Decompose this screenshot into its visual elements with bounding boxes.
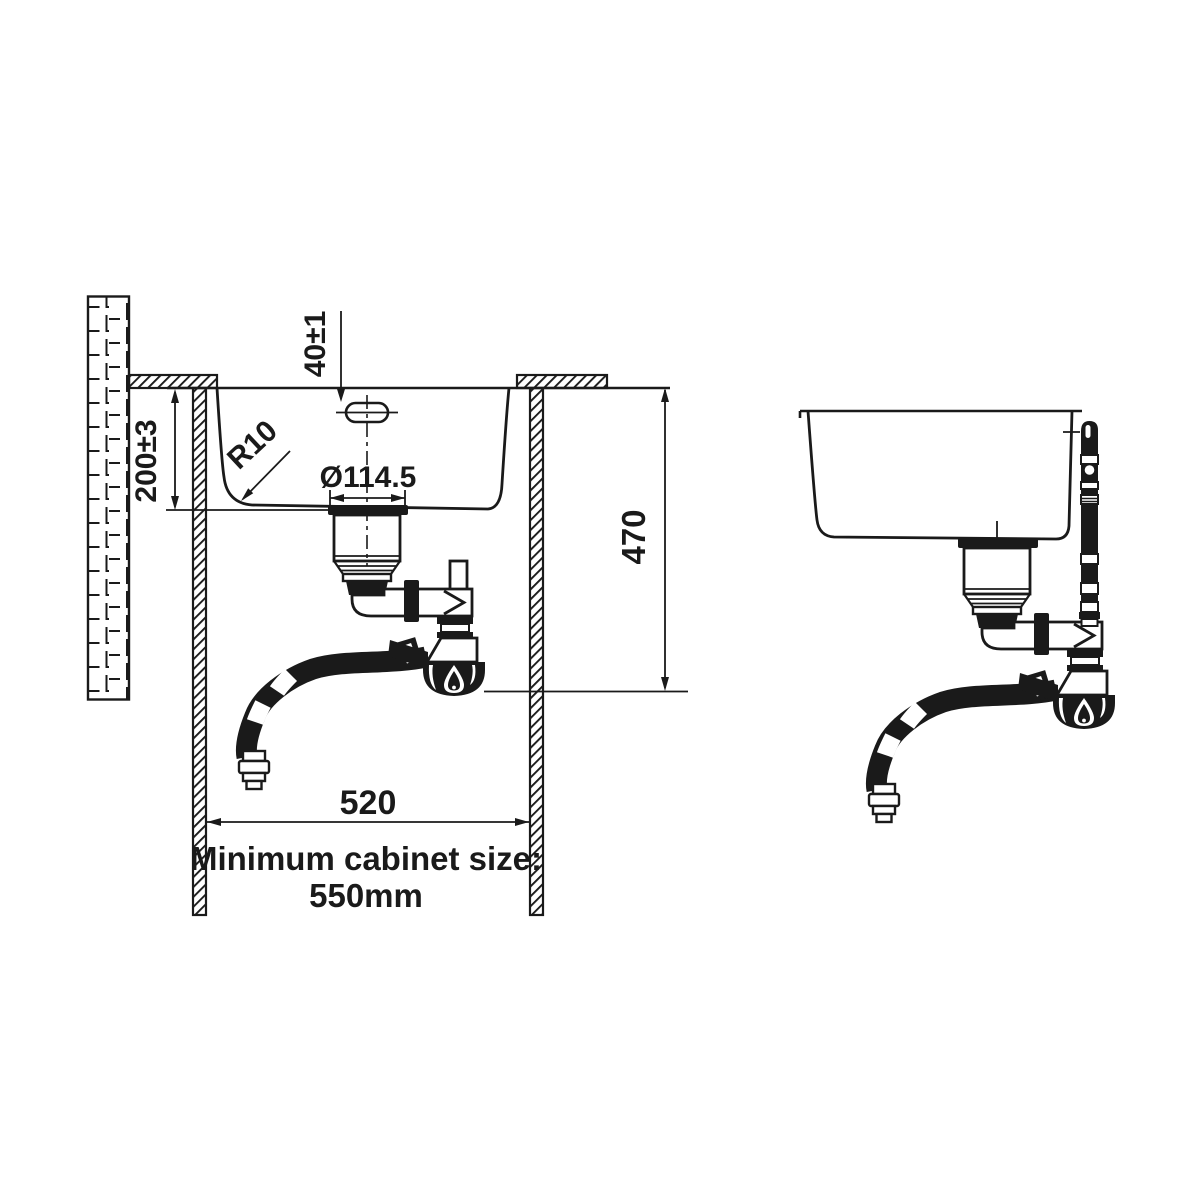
cabinet-note-line1: Minimum cabinet size:: [190, 840, 542, 877]
dim-height-label: 470: [615, 509, 652, 564]
dim-width-520: 520: [207, 784, 529, 826]
dim-overflow-label: 40±1: [299, 311, 332, 378]
sink-installation-diagram: 40±1 200±3 R10 Ø114.5 470: [0, 0, 1200, 1200]
drawing-canvas: 40±1 200±3 R10 Ø114.5 470: [0, 0, 1200, 1200]
dim-depth-label: 200±3: [130, 419, 163, 502]
cabinet-note-line2: 550mm: [309, 877, 423, 914]
section-view: 40±1 200±3 R10 Ø114.5 470: [88, 297, 688, 916]
side-sink-bowl: [808, 411, 1072, 539]
cabinet-wall-right: [530, 388, 543, 915]
countertop-left: [129, 375, 217, 388]
countertop-right: [517, 375, 607, 388]
cabinet-wall-left: [193, 388, 206, 915]
overflow-tee-stub: [450, 561, 467, 590]
overflow-hose: [1079, 421, 1100, 626]
dim-drain-label: Ø114.5: [320, 461, 417, 494]
cabinet-size-note: Minimum cabinet size: 550mm: [190, 840, 542, 914]
side-view: [800, 411, 1115, 822]
dim-width-label: 520: [340, 784, 397, 822]
dim-drain-diameter: Ø114.5: [320, 461, 417, 505]
dim-height-470: 470: [484, 388, 688, 692]
tiled-wall: [88, 297, 129, 700]
